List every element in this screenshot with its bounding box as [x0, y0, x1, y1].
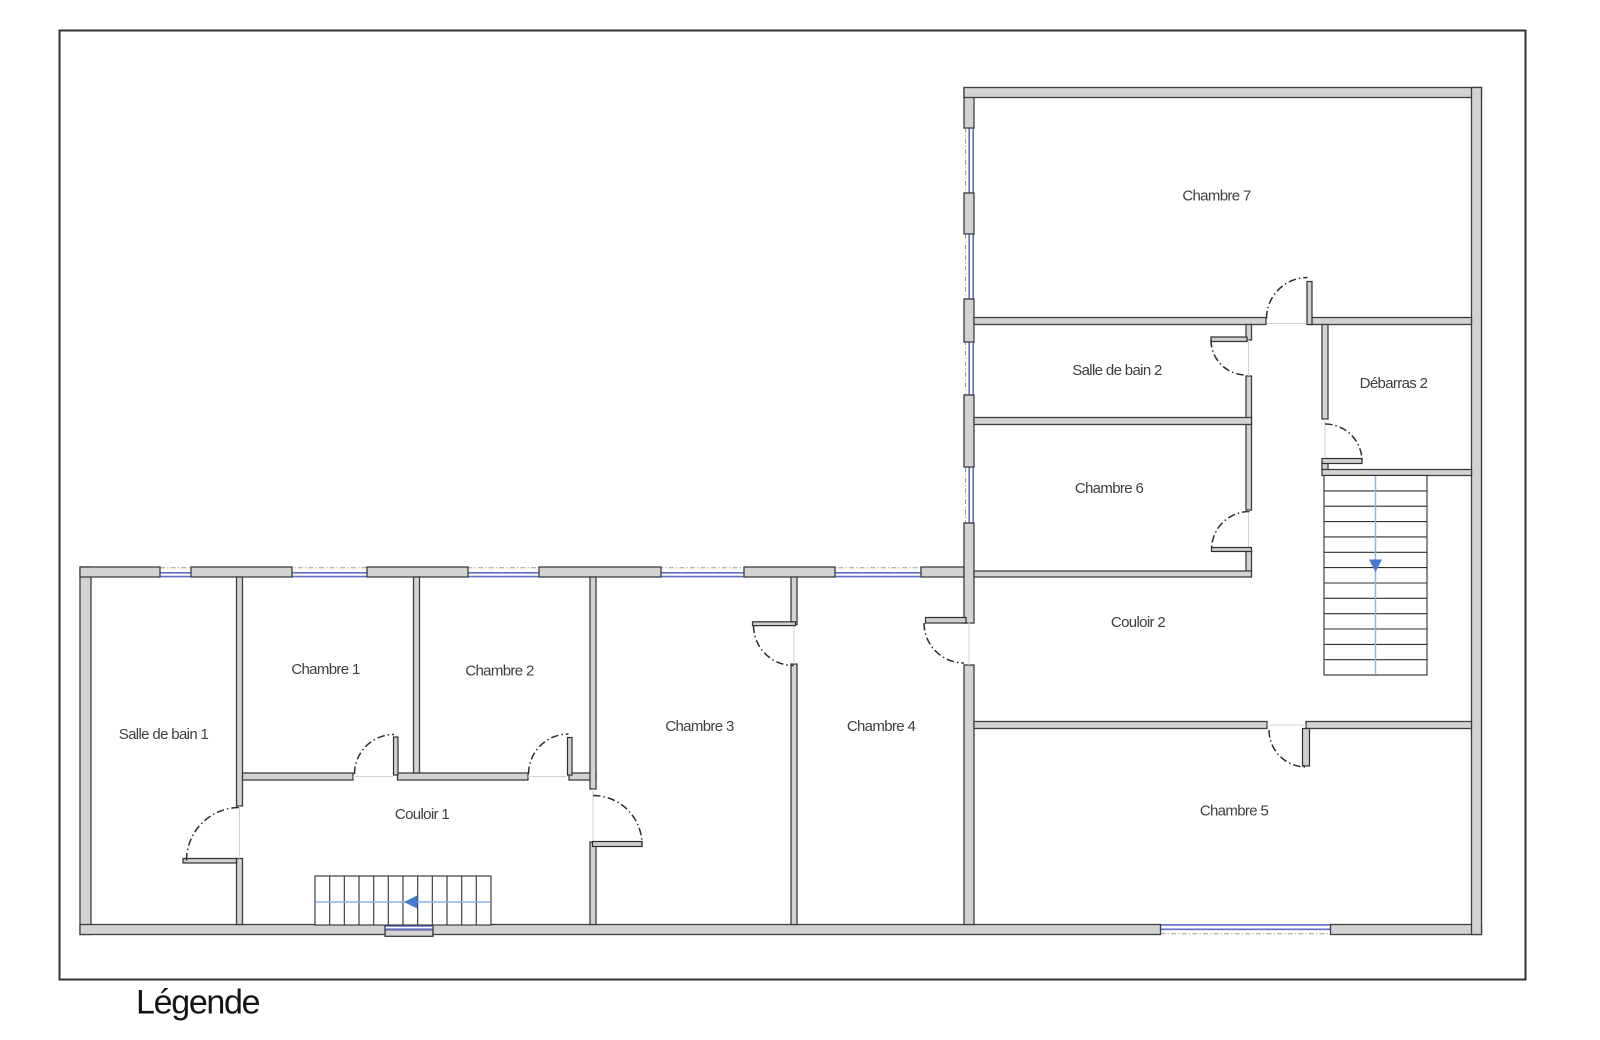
svg-text:Chambre 4: Chambre 4: [847, 718, 916, 735]
svg-text:Chambre 7: Chambre 7: [1182, 188, 1251, 205]
svg-text:Salle de bain 1: Salle de bain 1: [119, 726, 209, 743]
svg-text:Chambre 3: Chambre 3: [665, 718, 734, 735]
svg-text:Légende: Légende: [136, 984, 260, 1022]
svg-text:Chambre 6: Chambre 6: [1075, 480, 1144, 497]
svg-text:Couloir 2: Couloir 2: [1111, 614, 1165, 631]
svg-text:Salle de bain 2: Salle de bain 2: [1072, 362, 1162, 379]
svg-text:Chambre 2: Chambre 2: [465, 663, 534, 680]
svg-text:Chambre 1: Chambre 1: [291, 661, 360, 678]
svg-text:Couloir 1: Couloir 1: [395, 806, 449, 823]
svg-text:Débarras 2: Débarras 2: [1360, 375, 1428, 392]
svg-text:Chambre 5: Chambre 5: [1200, 803, 1269, 820]
